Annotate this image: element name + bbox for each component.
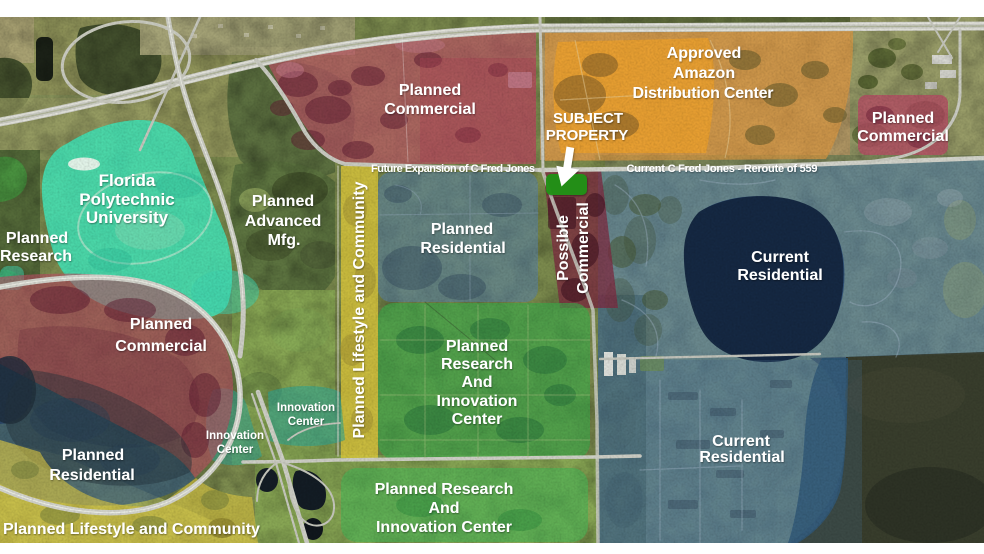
svg-text:Planned Research: Planned Research: [375, 481, 514, 498]
svg-text:Residential: Residential: [49, 467, 134, 484]
svg-text:Planned Lifestyle and Communit: Planned Lifestyle and Community: [3, 521, 260, 538]
svg-text:Innovation: Innovation: [277, 402, 335, 414]
svg-text:PROPERTY: PROPERTY: [546, 127, 629, 144]
svg-text:Commercial: Commercial: [575, 202, 592, 294]
svg-text:Mfg.: Mfg.: [268, 232, 301, 249]
svg-text:Planned: Planned: [431, 221, 493, 238]
svg-text:Planned: Planned: [6, 230, 68, 247]
svg-text:Center: Center: [452, 411, 503, 428]
svg-text:Research: Research: [0, 248, 72, 265]
svg-text:And: And: [428, 500, 459, 517]
svg-text:And: And: [461, 374, 492, 391]
svg-text:Future Expansion of C Fred Jon: Future Expansion of C Fred Jones: [371, 163, 535, 175]
svg-text:Florida: Florida: [99, 171, 156, 190]
svg-text:Commercial: Commercial: [384, 101, 476, 118]
svg-text:Residential: Residential: [699, 449, 784, 466]
svg-text:Innovation: Innovation: [437, 393, 518, 410]
svg-text:Current C Fred Jones - Reroute: Current C Fred Jones - Reroute of 559: [627, 163, 818, 175]
svg-text:Advanced: Advanced: [245, 213, 321, 230]
svg-text:Center: Center: [288, 416, 325, 428]
svg-text:Approved: Approved: [667, 45, 742, 62]
svg-text:Distribution Center: Distribution Center: [633, 85, 774, 102]
svg-text:Planned: Planned: [62, 447, 124, 464]
svg-text:Residential: Residential: [420, 240, 505, 257]
svg-text:Commercial: Commercial: [115, 338, 207, 355]
svg-text:Innovation Center: Innovation Center: [376, 519, 512, 536]
svg-text:Planned: Planned: [252, 193, 314, 210]
svg-text:Polytechnic: Polytechnic: [79, 190, 174, 209]
svg-text:Planned: Planned: [399, 82, 461, 99]
svg-text:Planned: Planned: [872, 110, 934, 127]
svg-text:Planned: Planned: [130, 316, 192, 333]
svg-text:Planned Lifestyle and Communit: Planned Lifestyle and Community: [351, 181, 368, 438]
svg-text:Research: Research: [441, 356, 513, 373]
svg-text:SUBJECT: SUBJECT: [553, 110, 623, 127]
svg-text:Possible: Possible: [555, 215, 572, 281]
svg-text:Residential: Residential: [737, 267, 822, 284]
svg-text:Current: Current: [712, 433, 770, 450]
svg-text:Innovation: Innovation: [206, 430, 264, 442]
svg-text:Current: Current: [751, 249, 809, 266]
svg-text:Planned: Planned: [446, 338, 508, 355]
svg-text:Commercial: Commercial: [857, 128, 949, 145]
svg-text:Center: Center: [217, 444, 254, 456]
svg-text:Amazon: Amazon: [673, 65, 735, 82]
svg-text:University: University: [86, 208, 169, 227]
